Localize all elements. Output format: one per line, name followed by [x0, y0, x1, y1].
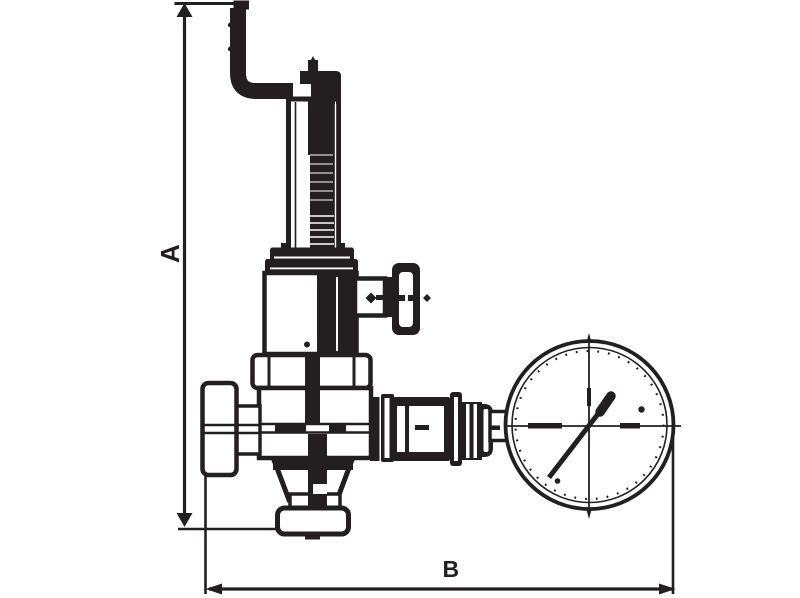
svg-text:B: B	[443, 556, 460, 582]
svg-text:A: A	[155, 244, 185, 263]
